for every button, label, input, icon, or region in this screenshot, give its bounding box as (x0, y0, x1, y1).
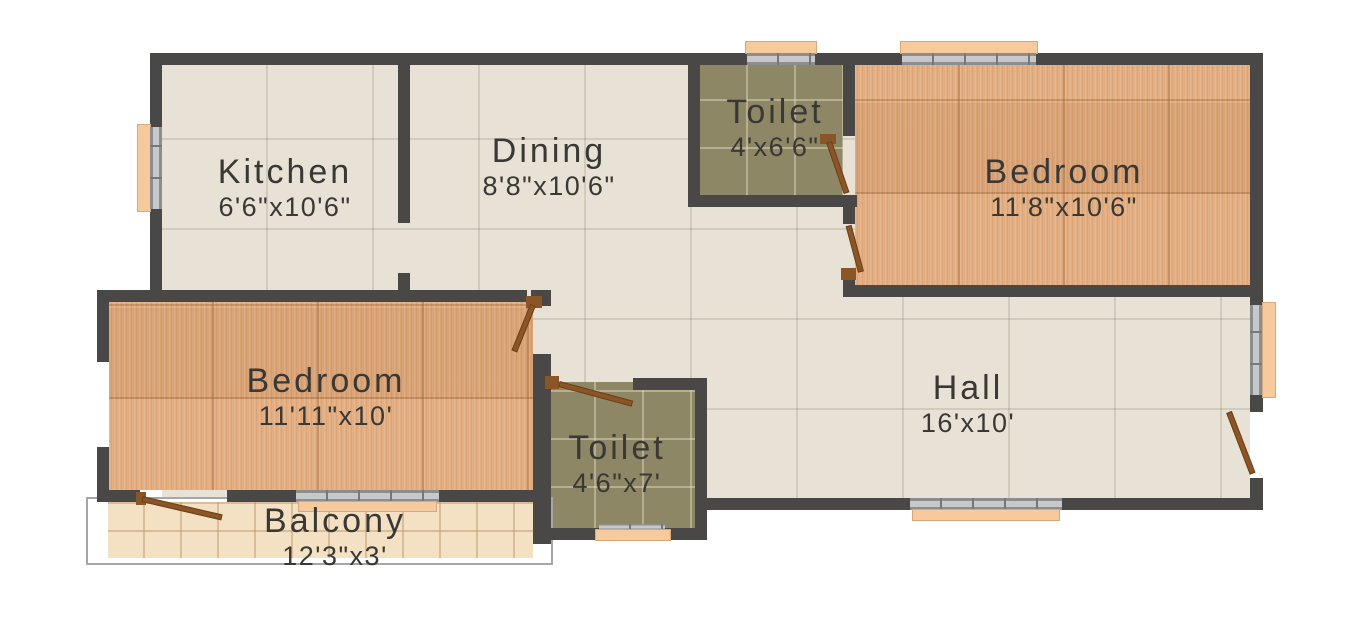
wall-toilet2-bottom-b (665, 528, 707, 540)
wall-toilet2-bottom-a (548, 528, 599, 540)
wall-toilet1-bottom (688, 195, 857, 207)
room-label-dining: Dining 8'8"x10'6" (482, 134, 615, 200)
kitchen-name: Kitchen (218, 155, 352, 191)
wall-toilet1-right-upper (843, 53, 855, 136)
wall-toilet1-left (688, 53, 700, 207)
kitchen-window-icon (150, 127, 162, 209)
wall-toilet2-right (695, 378, 707, 540)
room-label-balcony: Balcony 12'3"x3' (264, 504, 406, 570)
toilet-1-name: Toilet (726, 95, 823, 131)
toilet-1-dimensions: 4'x6'6" (726, 133, 823, 161)
floor-plan: Kitchen 6'6"x10'6" Dining 8'8"x10'6" Toi… (0, 0, 1360, 626)
toilet2-door-hinge (545, 376, 559, 389)
wall-right-upper (1250, 53, 1263, 305)
kitchen-dimensions: 6'6"x10'6" (218, 193, 352, 221)
wall-bedroom1-left-stub (843, 207, 855, 224)
balcony-dimensions: 12'3"x3' (264, 542, 406, 570)
wall-top (150, 53, 1263, 65)
room-label-toilet-2: Toilet 4'6"x7' (568, 431, 665, 497)
bedroom-2-dimensions: 11'11"x10' (247, 402, 406, 430)
bedroom-1-dimensions: 11'8"x10'6" (985, 193, 1144, 221)
hall-bottom-window-sill (912, 509, 1060, 521)
hall-dimensions: 16'x10' (921, 409, 1015, 437)
wall-bedroom2-bottom-b (227, 490, 296, 502)
wall-bedroom2-bottom-a (97, 490, 140, 502)
dining-dimensions: 8'8"x10'6" (482, 172, 615, 200)
hall-right-window-icon (1250, 305, 1262, 395)
toilet1-window-icon (747, 53, 815, 65)
wall-hall-bottom-right (1062, 498, 1263, 510)
wall-kitchen-dining-divider (398, 53, 410, 223)
wall-bedroom2-top (97, 290, 527, 302)
room-label-bedroom-2: Bedroom 11'11"x10' (247, 364, 406, 430)
wall-bedroom2-bottom-c (439, 490, 551, 502)
toilet-2-dimensions: 4'6"x7' (568, 469, 665, 497)
bedroom1-door-hinge (841, 268, 856, 280)
balcony-name: Balcony (264, 504, 406, 540)
room-label-toilet-1: Toilet 4'x6'6" (726, 95, 823, 161)
room-label-bedroom-1: Bedroom 11'8"x10'6" (985, 155, 1144, 221)
hall-right-window-sill (1262, 302, 1276, 398)
wall-hall-bottom-left (695, 498, 910, 510)
wall-left-kitchen-lower (150, 208, 162, 292)
kitchen-window-sill (137, 124, 151, 212)
room-label-hall: Hall 16'x10' (921, 371, 1015, 437)
wall-bedroom1-bottom (843, 285, 1263, 297)
toilet2-vent-window-sill (595, 529, 671, 541)
bedroom-1-name: Bedroom (985, 155, 1144, 191)
wall-kitchen-dining-stub (398, 273, 410, 302)
dining-name: Dining (482, 134, 615, 170)
room-label-kitchen: Kitchen 6'6"x10'6" (218, 155, 352, 221)
bedroom-2-name: Bedroom (247, 364, 406, 400)
bedroom1-window-icon (902, 53, 1036, 65)
toilet-2-name: Toilet (568, 431, 665, 467)
wall-left-kitchen-upper (150, 53, 162, 128)
hall-name: Hall (921, 371, 1015, 407)
